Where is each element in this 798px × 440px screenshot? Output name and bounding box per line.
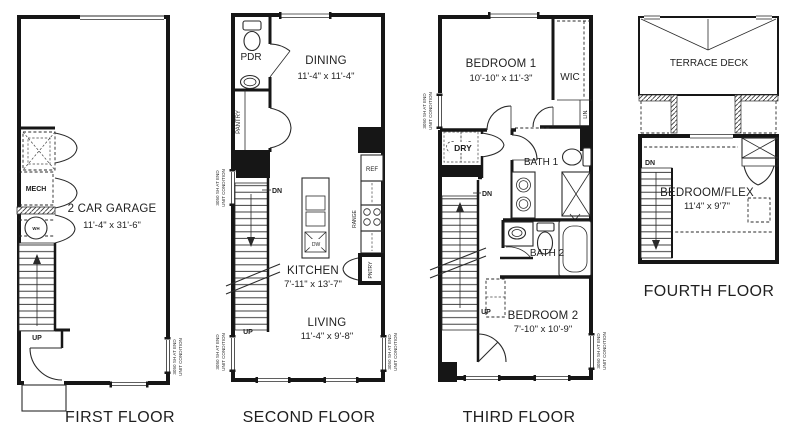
dn-label: DN bbox=[272, 188, 282, 195]
dining-label: DINING bbox=[305, 55, 346, 67]
window-note: 3050 SH AT END bbox=[215, 170, 220, 206]
dw-label: DW bbox=[312, 242, 321, 248]
dry-door bbox=[482, 133, 504, 157]
kitchen-label: KITCHEN bbox=[287, 265, 339, 277]
wic-label: WIC bbox=[560, 72, 579, 83]
dry-label: DRY bbox=[454, 143, 472, 153]
dn-label: DN bbox=[482, 191, 492, 198]
range-label: RANGE bbox=[352, 209, 358, 227]
closet-door bbox=[744, 166, 774, 185]
hatched-wall bbox=[17, 207, 55, 214]
flex-label: BEDROOM/FLEX bbox=[660, 187, 754, 199]
terrace-label: TERRACE DECK bbox=[670, 58, 749, 69]
floorplan-drawing: 2 CAR GARAGE 11'-4" x 31'-6" MECH WH UP … bbox=[0, 0, 798, 440]
up-label: UP bbox=[243, 329, 253, 336]
range bbox=[361, 205, 383, 231]
living-label: LIVING bbox=[308, 317, 347, 329]
svg-text:UNIT CONDITION: UNIT CONDITION bbox=[393, 333, 398, 371]
toilet bbox=[583, 148, 591, 166]
toilet bbox=[243, 21, 261, 30]
bedroom2-dims: 7'-10" x 10'-9" bbox=[514, 324, 572, 335]
svg-text:3050 SH AT END: 3050 SH AT END bbox=[387, 334, 392, 370]
wall-block bbox=[358, 127, 385, 153]
kitchen-dims: 7'-11" x 13'-7" bbox=[284, 279, 342, 290]
bedroom1-label: BEDROOM 1 bbox=[466, 58, 537, 70]
deck-slope-line bbox=[641, 19, 708, 50]
living-dims: 11'-4" x 9'-8" bbox=[301, 331, 353, 342]
stairs bbox=[235, 183, 268, 330]
lin-label: LIN. bbox=[583, 109, 589, 118]
bath1-label: BATH 1 bbox=[524, 157, 559, 168]
sink bbox=[509, 227, 526, 239]
first-floor-title: FIRST FLOOR bbox=[65, 409, 175, 426]
pantry-door bbox=[270, 108, 291, 148]
storage-door bbox=[55, 133, 77, 163]
fourth-floor-plan: TERRACE DECK DN BEDROOM/FLEX 11'4" x 9'7… bbox=[639, 13, 778, 300]
bedroom1-dims: 10'-10" x 11'-3" bbox=[469, 73, 532, 84]
bath2-label: BATH 2 bbox=[530, 248, 565, 259]
terrace-walls bbox=[639, 17, 778, 95]
svg-text:UNIT CONDITION: UNIT CONDITION bbox=[602, 332, 607, 370]
second-floor-plan: 3050 SH AT END UNIT CONDITION DW bbox=[215, 11, 398, 426]
garage-dims: 11'-4" x 31'-6" bbox=[83, 220, 141, 231]
ref-label: REF bbox=[366, 167, 378, 173]
fourth-floor-title: FOURTH FLOOR bbox=[644, 283, 775, 300]
pdr-door bbox=[270, 44, 290, 51]
third-floor-title: THIRD FLOOR bbox=[463, 409, 576, 426]
up-label: UP bbox=[32, 335, 42, 342]
parapet bbox=[735, 95, 778, 101]
up-label: UP bbox=[481, 309, 491, 316]
optional-box bbox=[748, 198, 770, 222]
pdr-label: PDR bbox=[240, 52, 261, 63]
dn-label: DN bbox=[645, 160, 655, 167]
svg-text:UNIT CONDITION: UNIT CONDITION bbox=[178, 338, 183, 376]
garage-label: 2 CAR GARAGE bbox=[68, 203, 157, 215]
bedroom1-door bbox=[487, 106, 511, 130]
svg-text:3050 SH AT END: 3050 SH AT END bbox=[215, 334, 220, 370]
pntry-label: PNTRY bbox=[368, 261, 374, 279]
second-floor-title: SECOND FLOOR bbox=[243, 409, 376, 426]
wh-label: WH bbox=[32, 226, 39, 231]
wic-door bbox=[533, 107, 553, 127]
sink bbox=[241, 76, 260, 89]
wh-door bbox=[55, 215, 75, 243]
first-floor-plan: 2 CAR GARAGE 11'-4" x 31'-6" MECH WH UP … bbox=[17, 12, 183, 426]
svg-text:UNIT CONDITION: UNIT CONDITION bbox=[221, 169, 226, 207]
svg-text:3050 SH AT END: 3050 SH AT END bbox=[596, 333, 601, 369]
bedroom2-label: BEDROOM 2 bbox=[508, 310, 579, 322]
pantry-label: PANTRY bbox=[236, 110, 242, 134]
svg-text:3050 SH AT END: 3050 SH AT END bbox=[422, 93, 427, 129]
third-floor-plan: 3050 SH AT END UNIT CONDITION DRY bbox=[422, 11, 607, 426]
svg-text:UNIT CONDITION: UNIT CONDITION bbox=[221, 333, 226, 371]
window-note: 3050 SH AT END bbox=[172, 339, 177, 375]
flex-dims: 11'4" x 9'7" bbox=[684, 201, 730, 212]
mech-label: MECH bbox=[26, 186, 47, 193]
toilet bbox=[537, 223, 554, 231]
svg-text:UNIT CONDITION: UNIT CONDITION bbox=[428, 92, 433, 130]
entry-door bbox=[30, 348, 62, 380]
dining-dims: 11'-4" x 11'-4" bbox=[297, 71, 354, 82]
wall-block bbox=[231, 150, 270, 178]
floorplan-sheet: 2 CAR GARAGE 11'-4" x 31'-6" MECH WH UP … bbox=[0, 0, 798, 440]
pntry-door bbox=[343, 258, 358, 280]
